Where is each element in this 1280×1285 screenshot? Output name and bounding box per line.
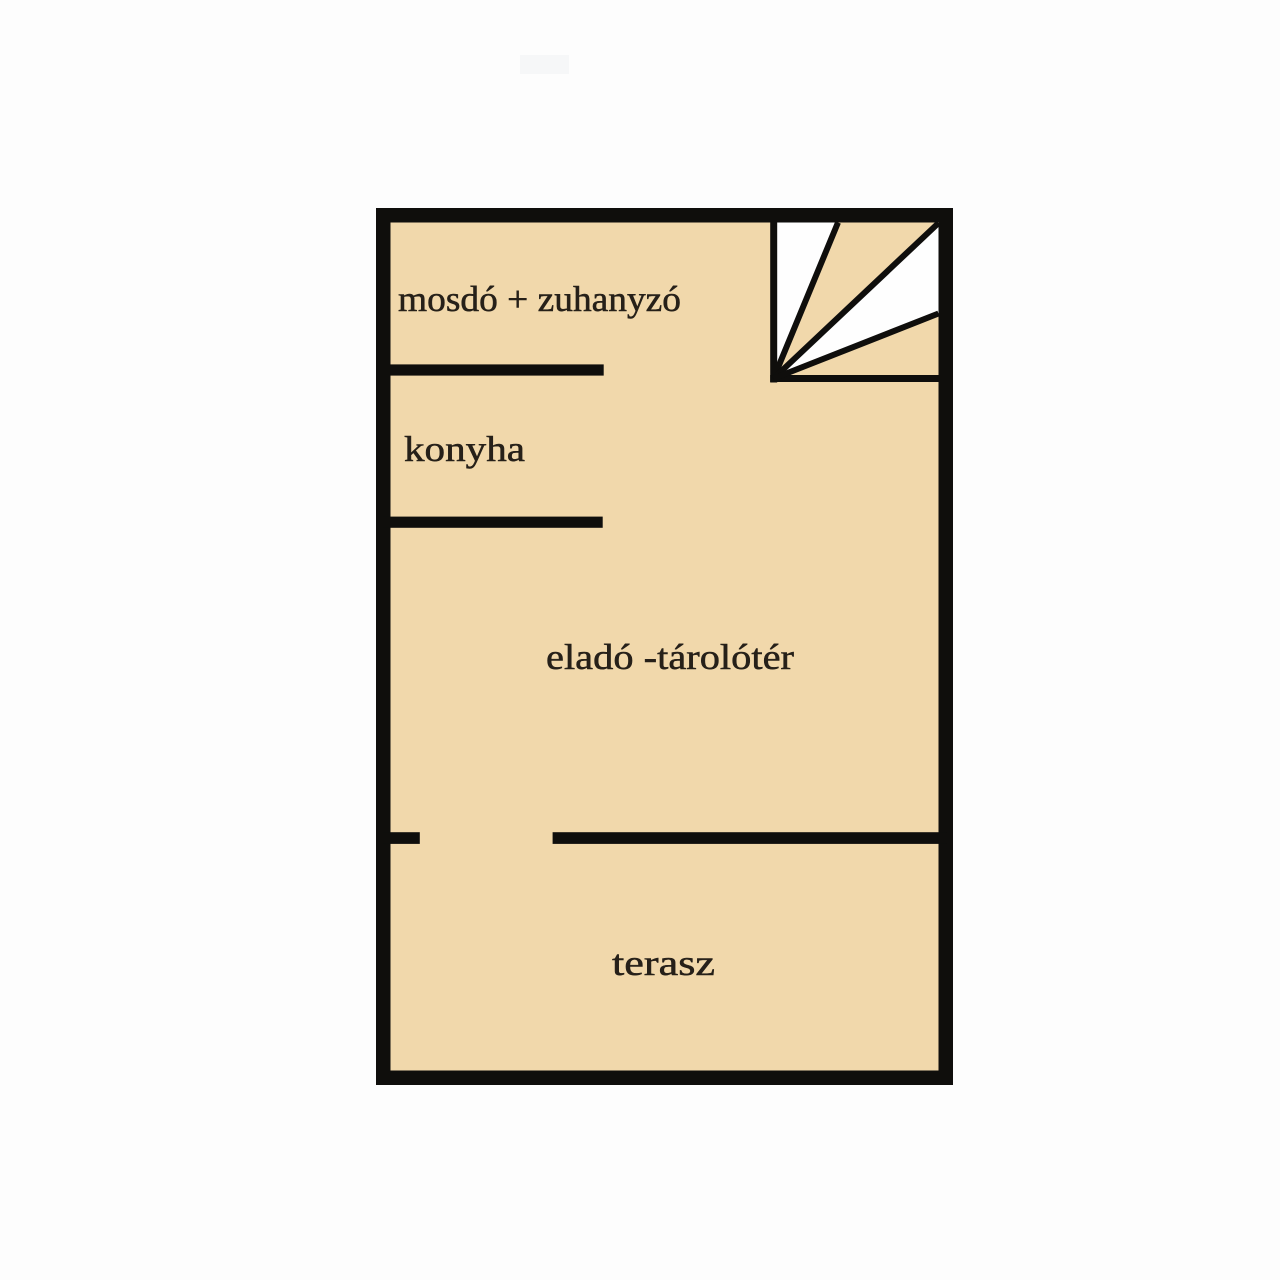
- svg-text:eladó -tárolótér: eladó -tárolótér: [546, 637, 794, 677]
- svg-text:mosdó + zuhanyzó: mosdó + zuhanyzó: [398, 279, 681, 319]
- svg-text:konyha: konyha: [404, 429, 525, 469]
- svg-text:terasz: terasz: [612, 943, 715, 983]
